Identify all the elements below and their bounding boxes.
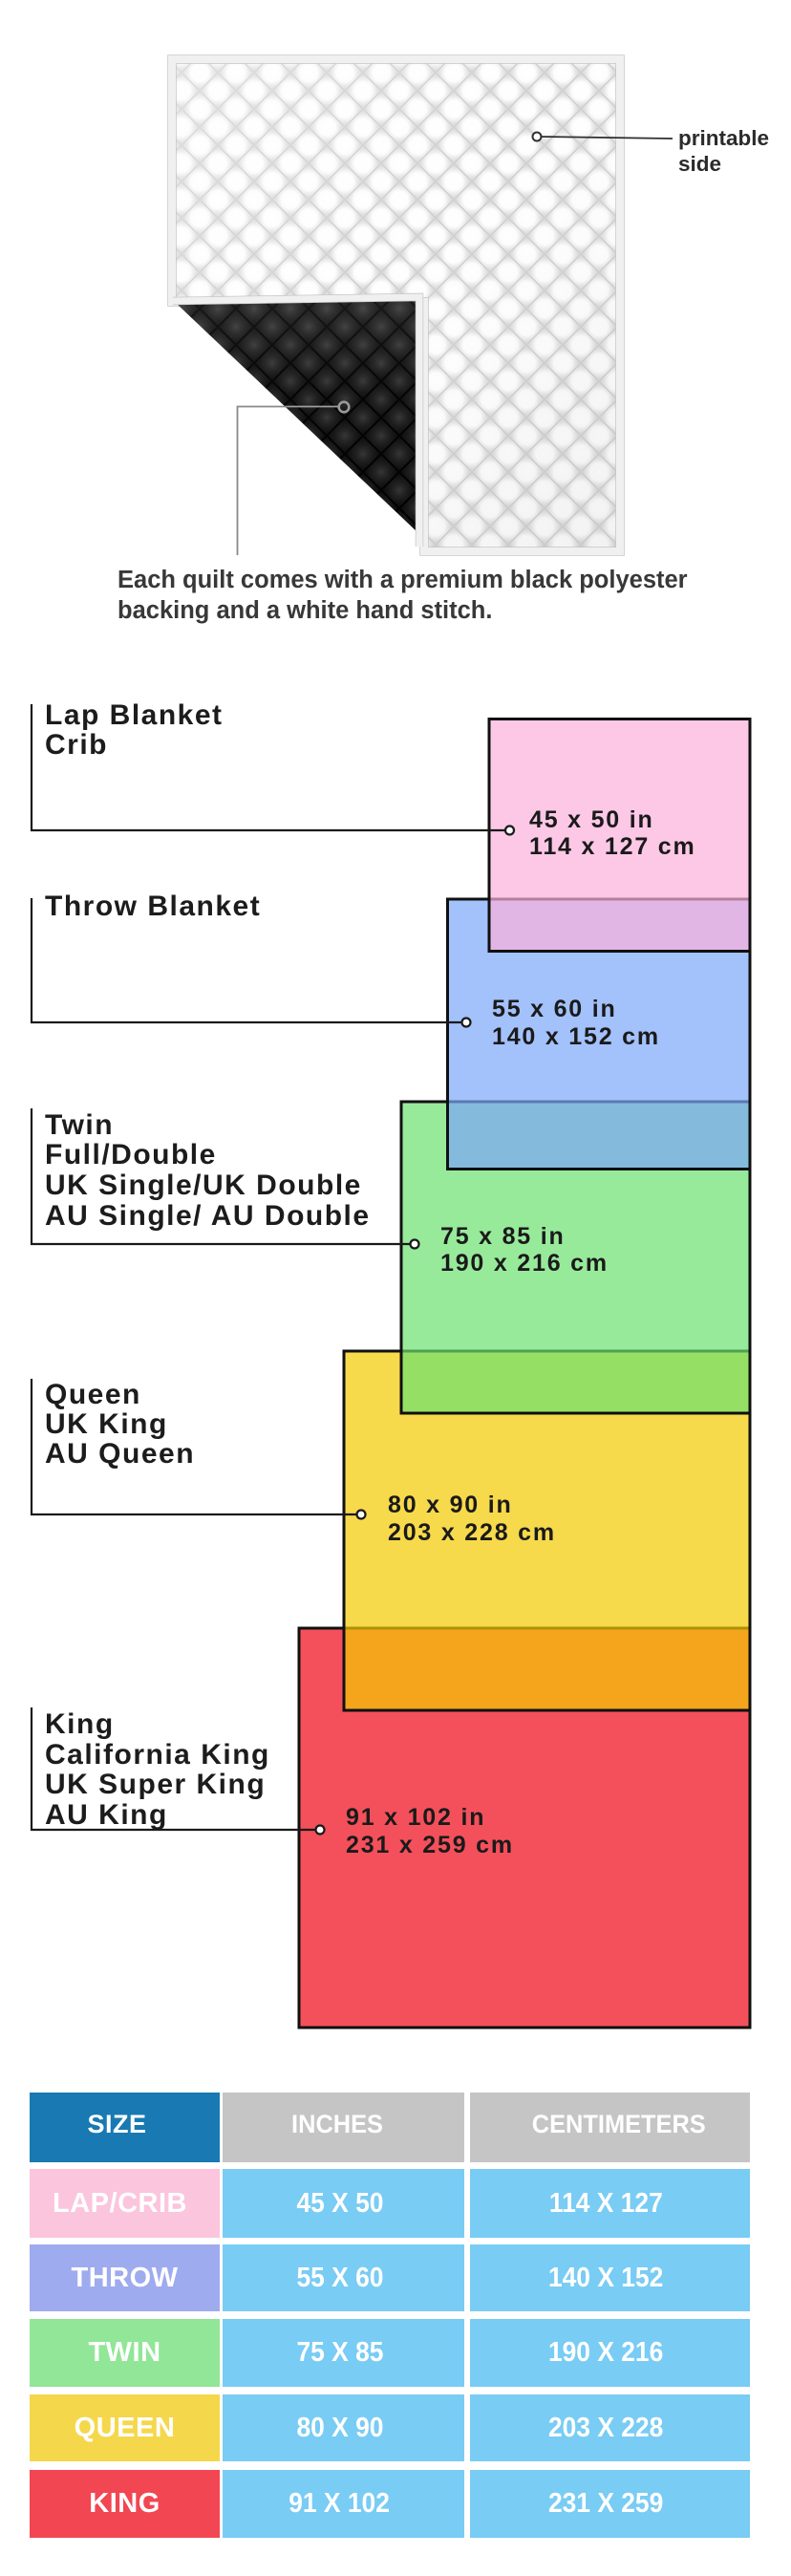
svg-text:AU Single/ AU Double: AU Single/ AU Double (45, 1200, 371, 1232)
svg-text:AU King: AU King (45, 1799, 168, 1831)
svg-text:California King: California King (45, 1739, 270, 1771)
svg-text:75 x 85 in: 75 x 85 in (440, 1223, 566, 1250)
svg-text:140 x 152 cm: 140 x 152 cm (492, 1023, 660, 1050)
svg-text:190 x 216 cm: 190 x 216 cm (440, 1250, 609, 1277)
svg-text:80 x 90 in: 80 x 90 in (388, 1492, 513, 1518)
svg-text:printable: printable (678, 126, 769, 150)
svg-text:AU Queen: AU Queen (45, 1438, 195, 1470)
svg-text:231 x 259 cm: 231 x 259 cm (346, 1832, 514, 1858)
svg-text:King: King (45, 1708, 115, 1740)
svg-text:Each quilt comes with a premiu: Each quilt comes with a premium black po… (118, 567, 688, 593)
svg-text:114 x 127 cm: 114 x 127 cm (529, 833, 696, 860)
svg-text:UK King: UK King (45, 1408, 168, 1440)
svg-text:55 x 60 in: 55 x 60 in (492, 996, 617, 1022)
svg-text:side: side (678, 152, 721, 176)
svg-text:Full/Double: Full/Double (45, 1139, 217, 1170)
svg-text:UK Single/UK Double: UK Single/UK Double (45, 1170, 362, 1201)
svg-text:45 x 50 in: 45 x 50 in (529, 806, 654, 833)
svg-text:91 x 102 in: 91 x 102 in (346, 1804, 485, 1831)
svg-text:203 x 228 cm: 203 x 228 cm (388, 1519, 556, 1546)
svg-text:Crib: Crib (45, 729, 108, 761)
svg-text:Queen: Queen (45, 1379, 141, 1410)
svg-text:backing and a white hand stitc: backing and a white hand stitch. (118, 597, 492, 624)
svg-text:UK Super King: UK Super King (45, 1769, 266, 1800)
svg-text:Throw Blanket: Throw Blanket (45, 891, 261, 922)
svg-text:Lap Blanket: Lap Blanket (45, 699, 224, 731)
svg-text:Twin: Twin (45, 1109, 114, 1141)
